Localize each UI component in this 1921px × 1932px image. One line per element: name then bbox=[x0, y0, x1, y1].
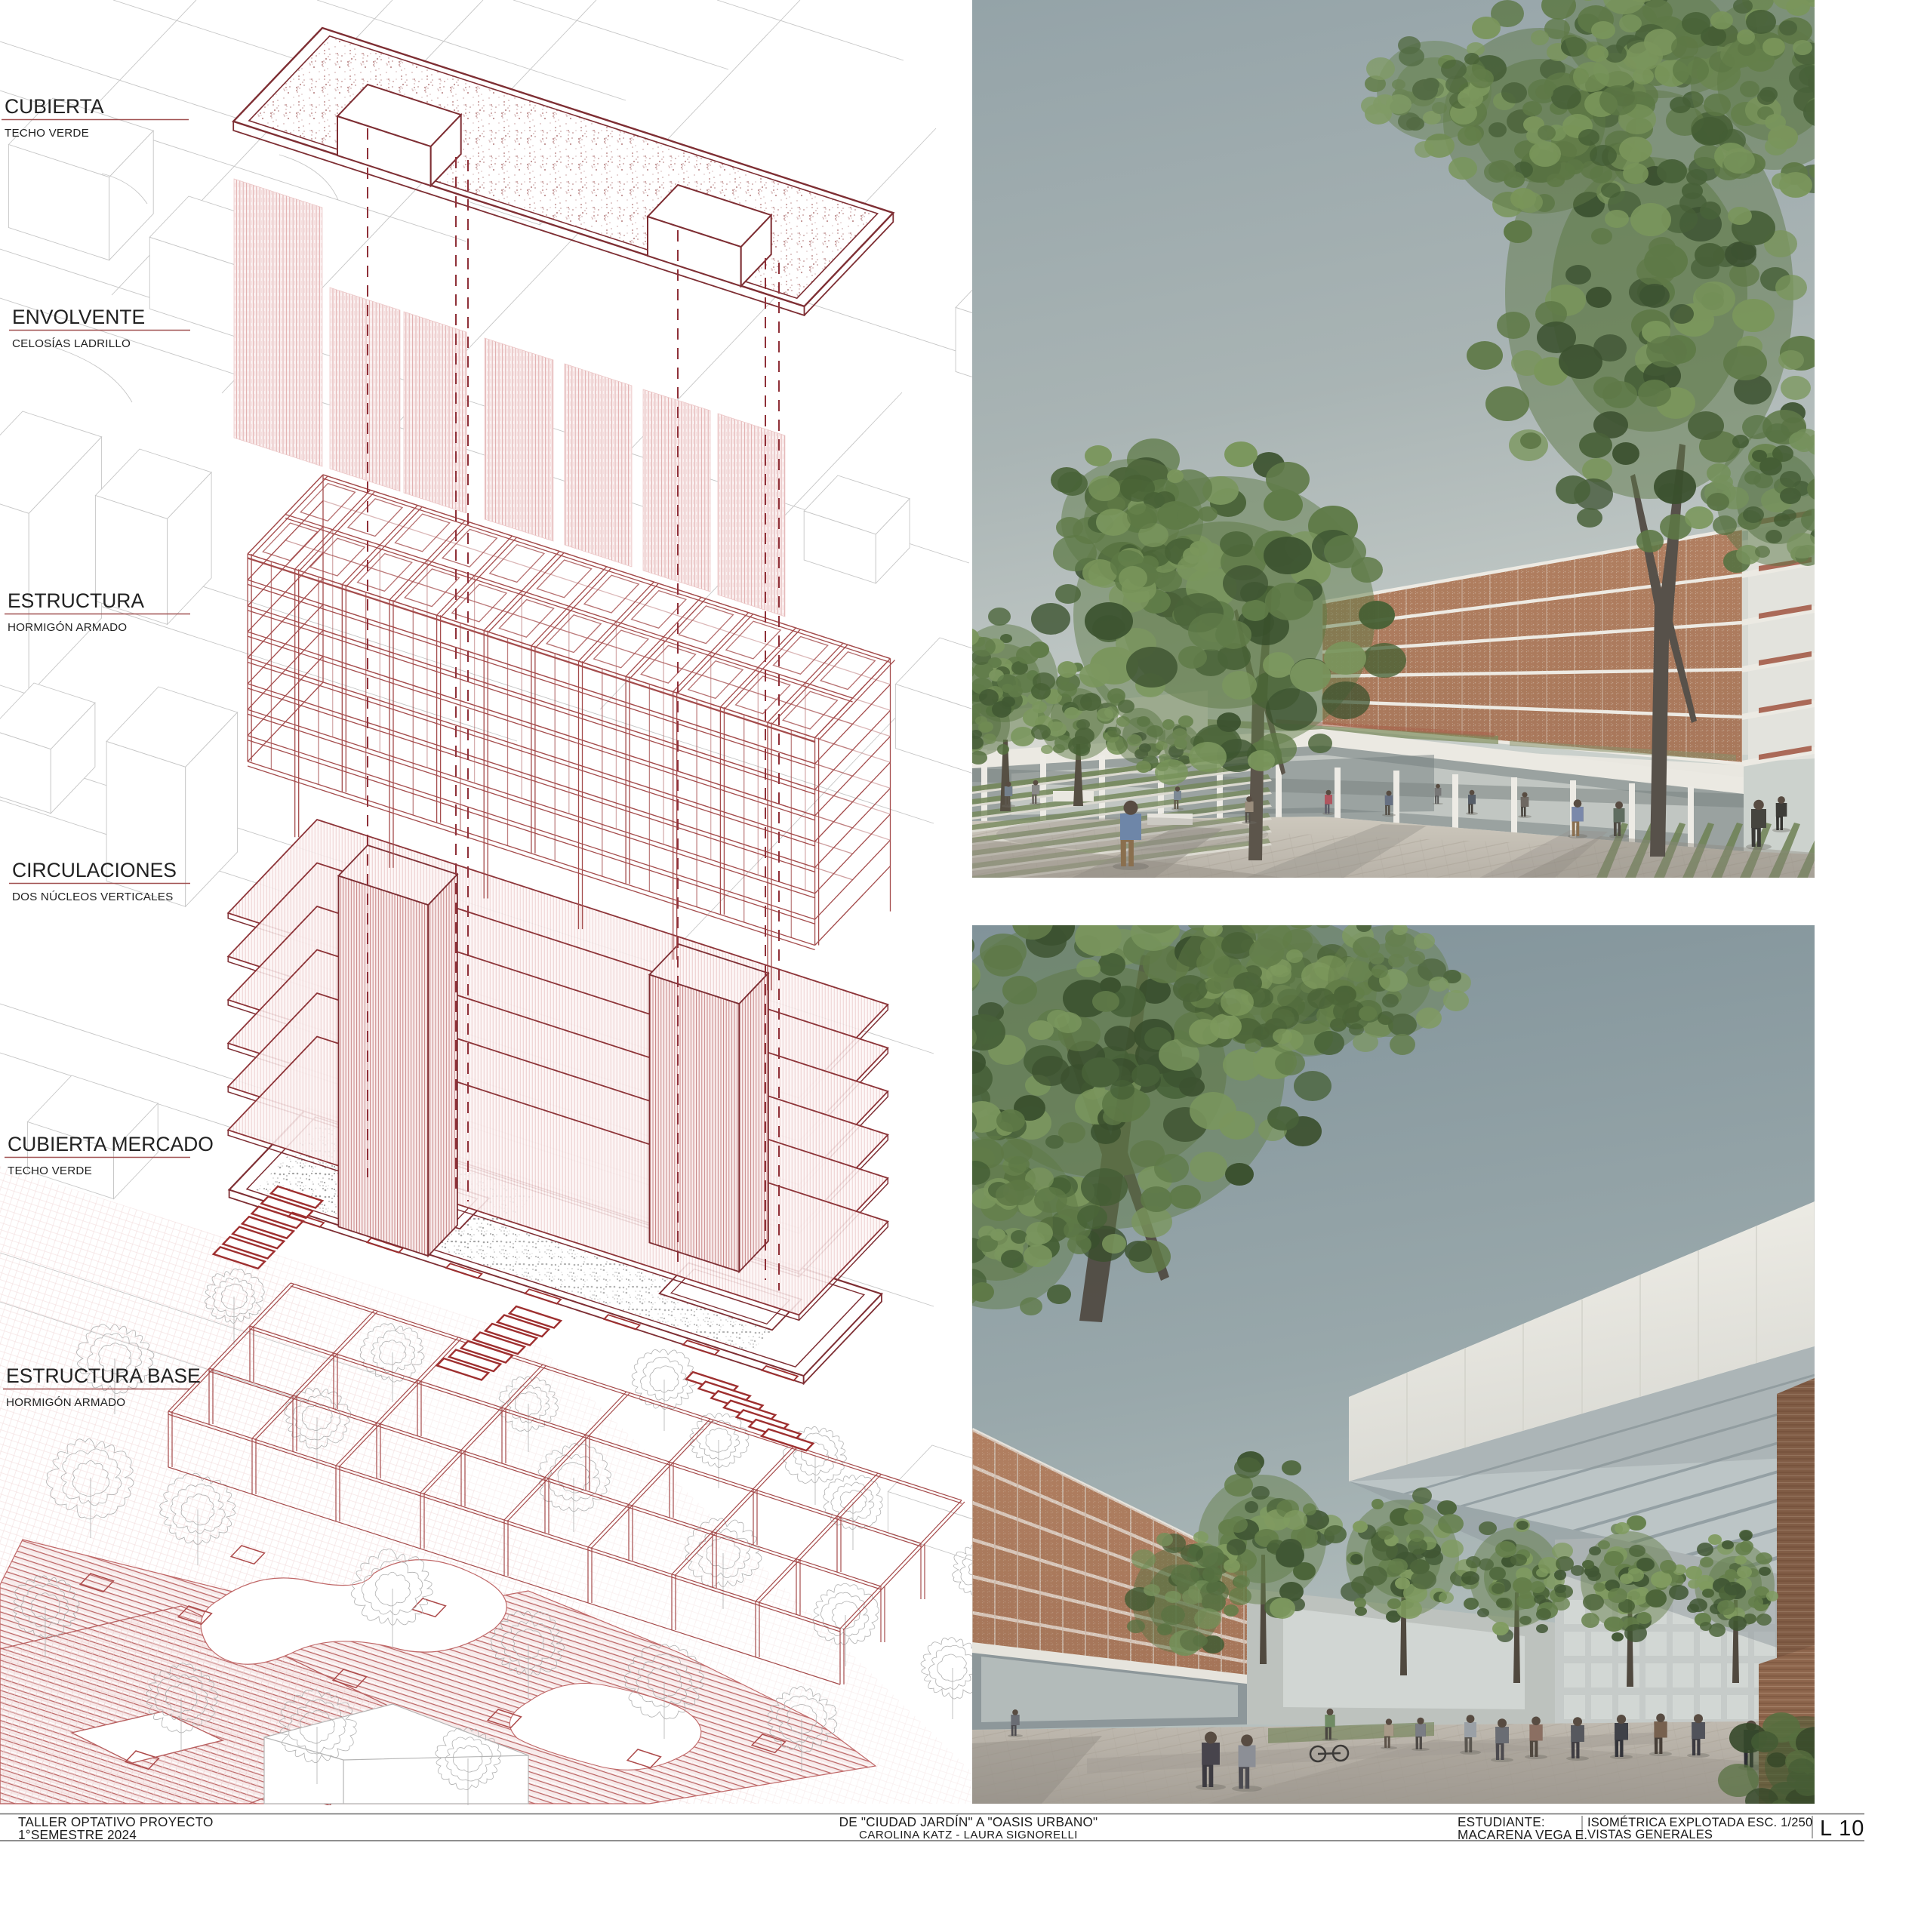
svg-text:ENVOLVENTE: ENVOLVENTE bbox=[12, 306, 145, 328]
svg-text:CUBIERTA: CUBIERTA bbox=[5, 95, 104, 118]
svg-text:CELOSÍAS LADRILLO: CELOSÍAS LADRILLO bbox=[12, 337, 131, 350]
svg-text:ESTRUCTURA: ESTRUCTURA bbox=[8, 589, 144, 612]
svg-text:TECHO VERDE: TECHO VERDE bbox=[8, 1164, 92, 1177]
svg-text:MACARENA VEGA E.: MACARENA VEGA E. bbox=[1458, 1827, 1587, 1842]
svg-text:HORMIGÓN ARMADO: HORMIGÓN ARMADO bbox=[6, 1396, 125, 1409]
svg-text:ESTRUCTURA BASE: ESTRUCTURA BASE bbox=[6, 1364, 201, 1387]
svg-text:DOS NÚCLEOS VERTICALES: DOS NÚCLEOS VERTICALES bbox=[12, 891, 173, 903]
svg-text:HORMIGÓN ARMADO: HORMIGÓN ARMADO bbox=[8, 621, 127, 634]
svg-text:CAROLINA KATZ - LAURA SIGNOREL: CAROLINA KATZ - LAURA SIGNORELLI bbox=[859, 1829, 1078, 1841]
svg-text:CUBIERTA MERCADO: CUBIERTA MERCADO bbox=[8, 1133, 214, 1155]
svg-text:VISTAS GENERALES: VISTAS GENERALES bbox=[1587, 1828, 1713, 1841]
svg-text:TECHO VERDE: TECHO VERDE bbox=[5, 127, 89, 140]
svg-text:DE "CIUDAD JARDÍN" A "OASIS UR: DE "CIUDAD JARDÍN" A "OASIS URBANO" bbox=[839, 1814, 1098, 1829]
svg-text:CIRCULACIONES: CIRCULACIONES bbox=[12, 859, 177, 881]
svg-text:1°SEMESTRE 2024: 1°SEMESTRE 2024 bbox=[18, 1827, 137, 1842]
svg-text:L 10: L 10 bbox=[1820, 1817, 1864, 1841]
